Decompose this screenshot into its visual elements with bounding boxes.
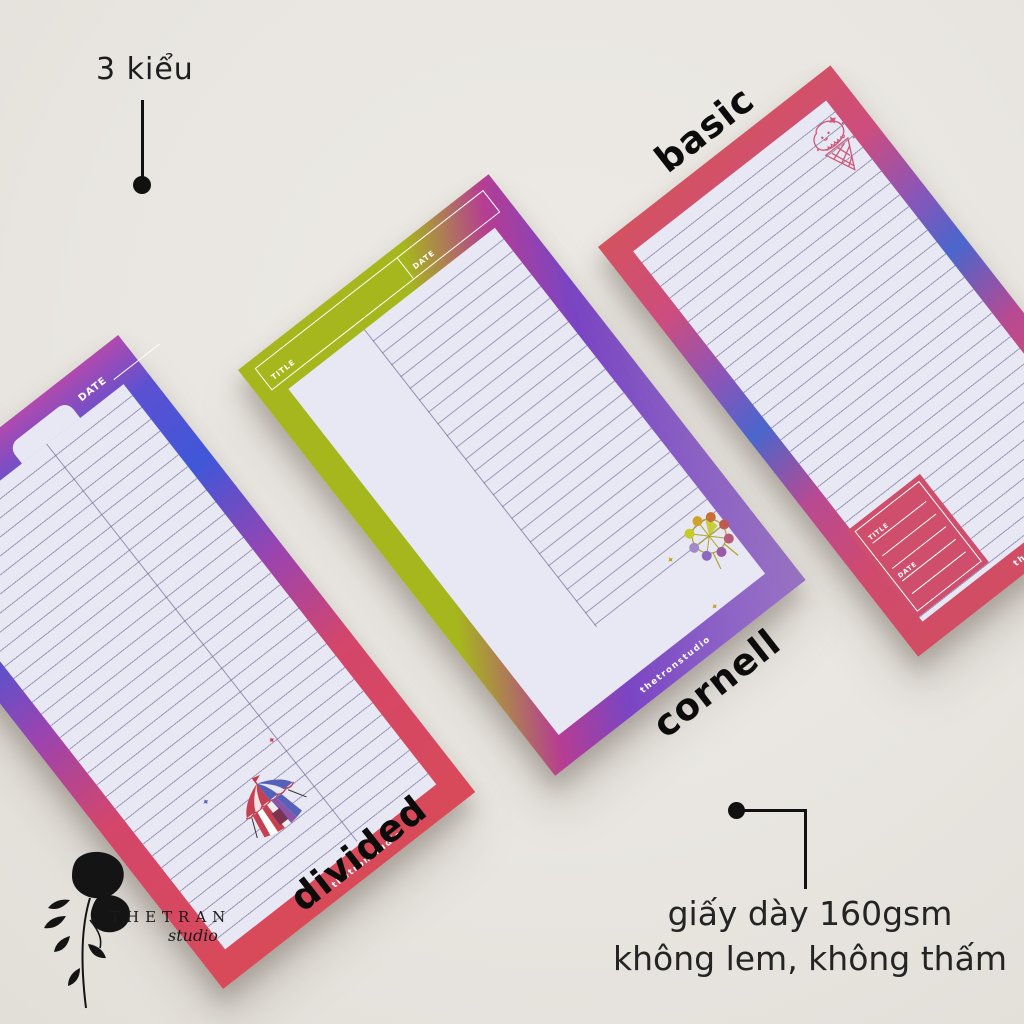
callout-line	[804, 809, 807, 889]
brand-logo: THETRAN studio	[30, 840, 260, 1020]
callout-line	[740, 809, 806, 812]
star-accent: ✦	[710, 601, 722, 614]
styles-count-annotation: 3 kiểu	[96, 52, 194, 87]
paper-quality-text: không lem, không thấm	[560, 937, 1024, 982]
date-label: DATE	[411, 248, 437, 271]
date-write-line	[107, 336, 159, 380]
product-photo-scene: DATE	[0, 0, 1024, 1024]
paper-spec-annotation: giấy dày 160gsm không lem, không thấm	[560, 892, 1024, 981]
brand-subname: studio	[168, 926, 218, 945]
title-label: TITLE	[269, 357, 297, 381]
rose-icon	[30, 840, 160, 1020]
ice-cream-icon	[798, 107, 878, 190]
callout-line	[141, 100, 144, 178]
brand-name: THETRAN	[110, 908, 231, 926]
callout-dot	[133, 176, 151, 194]
title-date-box: TITLE DATE	[847, 474, 988, 619]
header-divider	[397, 258, 414, 279]
paper-weight-text: giấy dày 160gsm	[560, 892, 1024, 937]
